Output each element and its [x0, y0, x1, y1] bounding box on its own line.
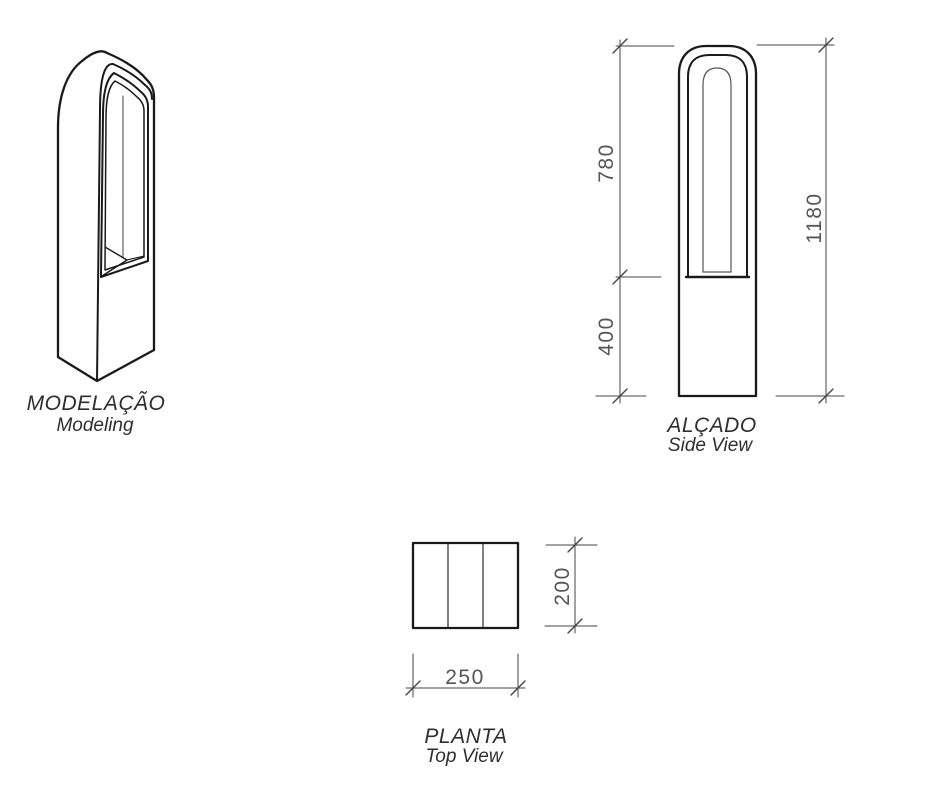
- side-view-subtitle: Side View: [668, 435, 752, 457]
- modeling-view-title: MODELAÇÃO: [27, 392, 166, 416]
- dimension-lower-section: 400: [595, 316, 619, 356]
- dimension-upper-section: 780: [595, 143, 619, 183]
- modeling-view-subtitle: Modeling: [56, 415, 133, 437]
- dimension-total-height: 1180: [803, 192, 827, 243]
- top-view-dimensions: [406, 537, 597, 697]
- dimension-width: 250: [445, 666, 485, 690]
- drawing-sheet: 780 400 1180 200 250 MODELAÇÃO Modeling …: [0, 0, 938, 790]
- top-view-subtitle: Top View: [425, 746, 502, 768]
- dimension-depth: 200: [551, 566, 575, 606]
- top-view-drawing: [413, 543, 518, 628]
- modeling-3d-drawing: [58, 51, 154, 381]
- side-view-drawing: [679, 46, 756, 396]
